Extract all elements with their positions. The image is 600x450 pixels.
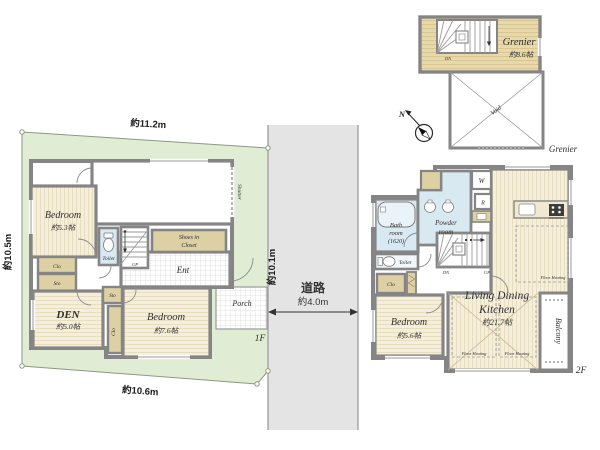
grenier-room-label: Grenier <box>503 37 537 48</box>
floor2-plan: Bath room (1620) Powder room W R Toilet … <box>371 165 587 376</box>
floor1-plan: Bedroom 約5.3帖 Clo Sto DEN 約5.0帖 Toilet U… <box>29 159 267 359</box>
balcony-label: Balcony <box>554 318 563 345</box>
bedroom1-label: Bedroom <box>45 210 81 221</box>
toilet2-label: Toilet <box>399 260 412 266</box>
closet-top-left <box>421 171 441 190</box>
sto2-label: Sto <box>109 294 116 299</box>
compass-icon <box>405 110 433 142</box>
bath-label2: room <box>389 230 403 237</box>
floor-heating-label-kitchen: Floor Heating <box>540 275 567 280</box>
den-label: DEN <box>55 309 80 321</box>
ldk-label1: Living Dining <box>464 290 529 302</box>
floor-heating-label-right: Floor Heating <box>504 351 531 356</box>
bedroom3-label: Bedroom <box>391 317 427 328</box>
road-strip: 道路 約4.0m <box>268 125 358 430</box>
bedroom1-size: 約5.3帖 <box>51 223 77 232</box>
porch-label: Porch <box>231 299 251 308</box>
shoes-closet-label1: Shoes in <box>179 235 199 241</box>
kitchen-counter-icon <box>514 201 568 218</box>
grenier-floor-label: Grenier <box>549 144 578 154</box>
grenier-plan: N DN Grenier 約8.6帖 Void Grenier <box>398 17 578 154</box>
bedroom1-room <box>31 186 96 257</box>
road-width-label: 約4.0m <box>298 296 329 308</box>
floor1-label: 1F <box>255 334 266 344</box>
floor2-label: 2F <box>576 366 587 376</box>
ent-label: Ent <box>176 265 190 275</box>
fridge-label: R <box>480 201 485 207</box>
bath-label3: (1620) <box>388 238 404 245</box>
clo-2f-label: Clo <box>387 282 395 288</box>
shoes-closet-label2: Closet <box>181 243 197 249</box>
toilet1-icon <box>104 233 114 252</box>
floor-plan-page: 道路 約4.0m 約11.2m 約10.5m 約10.6m 約10.1m <box>0 0 600 450</box>
counter-below-fridge <box>472 211 491 222</box>
sto1-label: Sto <box>53 281 60 287</box>
dim-right: 約10.1m <box>266 249 278 285</box>
stairs2-icon <box>437 233 490 267</box>
grenier-room-size: 約8.6帖 <box>509 50 535 59</box>
floor-heating-label-left: Floor Heating <box>461 351 488 356</box>
north-label: N <box>398 109 406 119</box>
clo2-label: Clo <box>111 328 117 336</box>
grenier-dn-label: DN <box>444 56 452 61</box>
powder-label2: room <box>439 228 454 236</box>
dn2-label: DN <box>442 270 450 275</box>
bedroom2-size: 約7.6帖 <box>154 326 180 335</box>
shutter-label: Shutter <box>236 184 242 201</box>
bedroom3-size: 約5.6帖 <box>397 331 423 340</box>
up1-label: UP <box>132 262 138 267</box>
bath-label1: Bath <box>390 222 402 229</box>
toilet1-label: Toilet <box>102 256 115 262</box>
up2-label: UP <box>484 270 490 275</box>
shelf-2f <box>407 272 416 294</box>
bedroom2-label: Bedroom <box>147 312 186 323</box>
den-size: 約5.0帖 <box>56 322 82 331</box>
floor-plan-canvas: 道路 約4.0m 約11.2m 約10.5m 約10.6m 約10.1m <box>0 0 600 450</box>
ldk-size: 約21.7帖 <box>482 318 513 327</box>
road-label: 道路 <box>301 280 326 295</box>
ldk-label2: Kitchen <box>478 304 515 316</box>
toilet2-icon <box>378 257 395 267</box>
dim-bottom: 約10.6m <box>122 384 159 399</box>
dim-top: 約11.2m <box>130 117 167 131</box>
garage-room <box>92 161 232 224</box>
powder-label1: Powder <box>434 219 457 227</box>
clo1-label: Clo <box>53 264 61 270</box>
grenier-stairs-icon <box>437 20 497 53</box>
dim-left: 約10.5m <box>2 234 14 270</box>
porch-area <box>216 287 267 329</box>
